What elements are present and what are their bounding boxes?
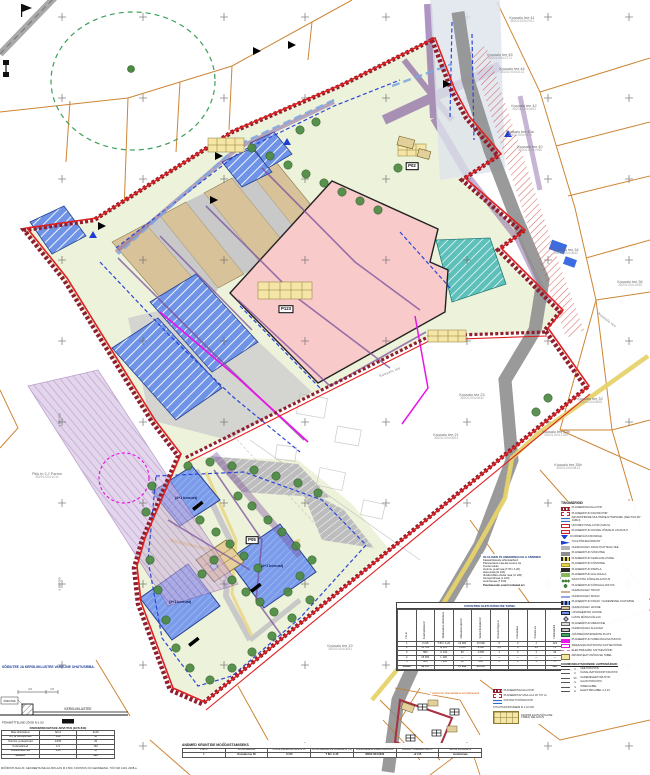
table-row: KOKKU223 (2, 754, 115, 759)
mini-legend-label: PLANEERITAV MAA-ALA 36 737 m² (504, 695, 560, 698)
table-cell (39, 754, 77, 759)
table-cell: 36 737 (416, 665, 435, 670)
legend-item: PLANEERITUD ABIHOONE (561, 622, 649, 626)
legend-item: PLANEERITUD HOONE VÕIMALIK ASUKOHT (561, 530, 649, 534)
rights-table-header-cell: Pos nr (398, 610, 417, 642)
sample-table-row: KRUNDI EHITUSÕIGUSE TABELI SELGITUS (493, 711, 560, 724)
utility-label: ELEKTRIKAABEL 0,4 kV (580, 690, 649, 693)
legend-swatch (561, 595, 570, 599)
utility-label: KANALISATSIOONITORUSTIK (580, 672, 649, 675)
safety-note: SÕIDUTEE JA KERGLIIKLUSTEE VAHELINE OHUT… (2, 666, 114, 670)
parking-table: Maa sihtotstarveNormKohti Äri- ja büroop… (1, 730, 115, 759)
mini-legend-swatch (493, 700, 502, 704)
legend-swatch (561, 579, 570, 583)
legend-swatch (561, 557, 570, 561)
legend-label: KRUNDI EHITUSÕIGUSE TABEL (572, 655, 649, 658)
legend-label: PLANEERITUD KÕRGHALJASTUS (572, 585, 649, 588)
legend-item: TULETÕRJEHÜDRANT (561, 541, 649, 545)
legend-label: OLEMASOLEV ALAJAAM (572, 628, 649, 631)
legend-label: PLANEERITUD KRAAV / SADEMEVEE JUHTIMINE (572, 601, 649, 604)
legend-swatch (561, 512, 570, 516)
mini-legend-item: KONTAKTVÖÖNDI PIIR (493, 700, 560, 704)
rights-table-header-cell: Krundi pindala m² (416, 610, 435, 642)
utility-line-swatch (561, 687, 570, 688)
utility-line-swatch (561, 678, 570, 679)
table-cell: +2 115 (396, 753, 439, 758)
legend-items: PLANEERINGUALA PIIR PLANEERITUD KRUNDI P… (561, 507, 649, 660)
legend-label: PLANEERITUD PARKLA (572, 569, 649, 572)
legend-label: SIDEKANALISATSIOONI KAITSEVÖÖND (572, 645, 649, 648)
legend-label: PLANEERINGUALA PIIR (572, 507, 649, 510)
table-cell (490, 665, 509, 670)
mini-legend-caption: SITUATSIOONISKEEM M 1:10 000 (493, 706, 560, 709)
legend-item: SÄILITATAV KÕRGHALJASTUS (561, 579, 649, 583)
table-cell: KOKKU (2, 754, 40, 759)
legend-label: ELEKTRIKAABLI KAITSEVÖÖND (572, 650, 649, 653)
mini-legend-label: PLANEERINGUALA PIIR (504, 690, 560, 693)
mini-legend-items: PLANEERINGUALA PIIR PLANEERITAV MAA-ALA … (493, 689, 560, 704)
legend-utilities-title: KOMMUNIKATSIOONIDE LEPPEMÄRGID: (561, 662, 649, 666)
legend-swatch (561, 628, 570, 632)
legend-label: PLANEERITUD SIDEKANALISATSIOON (572, 639, 649, 642)
legend-utility-item: SK SADEMEVEETORUSTIK (561, 677, 649, 680)
table-cell: 223 (77, 754, 115, 759)
legend-label: PLANEERITUD HALJASALA (572, 574, 649, 577)
legend-item: LIKVIDEERITAV HOONE (561, 611, 649, 615)
legend-title: TINGMÄRGID (561, 501, 649, 505)
legend-item: PLANEERITUD KÕNNITEE (561, 563, 649, 567)
legend-swatch (561, 573, 570, 577)
rights-table-header-cell: Korruselisus (509, 610, 528, 642)
legend-item: KRUNDIPIIRIDE MUUTMISE ETTEPANEK (KEHTIV… (561, 517, 649, 523)
table-cell: tootmismaa (439, 753, 482, 758)
legend-item: LASTE MÄNGUVÄLJAK (561, 617, 649, 621)
legend-item: OLEMASOLEV ALAJAAM (561, 628, 649, 632)
legend-swatch (561, 524, 570, 528)
legend-item: SIDEKANALISATSIOONI KAITSEVÖÖND (561, 644, 649, 648)
mini-legend-swatch (493, 694, 502, 698)
legend-label: PLANEERITUD KÕNNITEE (572, 563, 649, 566)
legend-item: OLEMASOLEV HOONE (561, 606, 649, 610)
legend-item: PLANEERITUD KERGLIIKLUSTEE (561, 557, 649, 561)
legend-swatch (561, 622, 570, 626)
legend-swatch (561, 518, 570, 522)
legend-swatch (561, 546, 570, 550)
legend-swatch (561, 584, 570, 588)
legend-label: HOONESTUSALA PIIR (SIDUV) (572, 525, 649, 528)
survey-base-note: MÕÕDISTUSALUS: GEODEETILINE ALUSPLAAN M … (1, 767, 261, 770)
legend-label: PLANEERITUD KRUNDI PIIR (572, 513, 649, 516)
legend-label: PLANEERITUD HOONE VÕIMALIK ASUKOHT (572, 530, 649, 533)
table-cell: T 80 / Ä 20 (311, 753, 354, 758)
legend-utility-item: K KANALISATSIOONITORUSTIK (561, 672, 649, 675)
legend-utility-items: V VEETORUSTIK K KANALISATSIOONITORUSTIK … (561, 668, 649, 693)
legend-item: JUURDEPÄÄS KRUNDILE (561, 535, 649, 539)
mini-legend: PLANEERINGUALA PIIR PLANEERITAV MAA-ALA … (493, 689, 560, 724)
utility-code: V (572, 668, 579, 671)
legend-swatch (561, 590, 570, 594)
legend-label: OLEMASOLEV KRAAV (572, 596, 649, 599)
table-cell (435, 665, 454, 670)
legend-item: ELEKTRIKAABLI KAITSEVÖÖND (561, 650, 649, 653)
legend-item: PLANEERITUD PARKLA (561, 568, 649, 572)
sample-rights-table-icon (493, 711, 519, 724)
legend-item: OLEMASOLEV KRAAV (561, 595, 649, 599)
legend-swatch (561, 568, 570, 572)
legend: TINGMÄRGID PLANEERINGUALA PIIR PLANEERIT… (561, 501, 649, 694)
legend-label: PLANEERITUD ABIHOONE (572, 623, 649, 626)
legend-item: PLANEERITUD HALJASALA (561, 573, 649, 577)
legend-label: PLANEERITUD KERGLIIKLUSTEE (572, 558, 649, 561)
legend-label: JUURDEPÄÄS KRUNDILE (570, 536, 649, 539)
section-dim1: 2.0 (28, 687, 32, 691)
legend-swatch (561, 563, 570, 567)
legend-swatch (561, 606, 570, 610)
utility-line-swatch (561, 669, 570, 670)
legend-item: OLEMASOLEV TRUUP (561, 590, 649, 594)
mini-legend-item: PLANEERITAV MAA-ALA 36 737 m² (493, 694, 560, 698)
utility-code: G (572, 681, 579, 684)
legend-label: PLANEERITUD SÕIDUTEE (572, 552, 649, 555)
mini-legend-swatch (493, 689, 502, 693)
rights-table-header-cell: Maakasutuse sihtotstarve (435, 610, 454, 642)
legend-item: PLANEERITUD KÕRGHALJASTUS (561, 584, 649, 588)
table-cell: 20 255 (472, 665, 491, 670)
section-left-label: SÕIDUTEE (3, 700, 16, 703)
legend-item: KRUNDI EHITUSÕIGUSE TABEL (561, 654, 649, 660)
sample-table-caption: KRUNDI EHITUSÕIGUSE TABELI SELGITUS (521, 715, 560, 721)
table-row: 1Kuusalu tee 309 115T 80 / Ä 2035201:004… (183, 753, 482, 758)
legend-swatch (561, 633, 570, 637)
legend-swatch (561, 535, 568, 539)
utility-code: K (572, 672, 579, 675)
section-dim2: 1.5 (50, 687, 54, 691)
rights-table-header-cell: Ehitusalune pind m² (453, 610, 472, 642)
building-rights-table-block: KRUNTIDE EHITUSÕIGUSE TABEL Pos nrKrundi… (396, 602, 584, 671)
utility-line-swatch (561, 682, 570, 683)
legend-label: KRUNDIPIIRIDE MUUTMISE ETTEPANEK (KEHTIV… (572, 517, 649, 523)
rights-table-header-cell: Hoonete arv (527, 610, 546, 642)
rights-table-note: * parkimine lahendatakse krundisiseselt (430, 691, 479, 695)
plot-formation-table-block: ANDMED KRUNTIDE MOODUSTAMISEKS Pos nrKru… (182, 743, 482, 758)
legend-label: LIKVIDEERITAV HOONE (572, 612, 649, 615)
legend-swatch (561, 541, 570, 545)
legend-label: OLEMASOLEV ASFALTKATTEGA TEE (572, 547, 649, 550)
legend-label: JÄÄTMEKONTEINERITE PLATS (572, 634, 649, 637)
legend-utility-item: G GAASITORUSTIK (561, 681, 649, 684)
parking-calculation-block: PARKIMISKOHTADE ARVUTUS (EVS 843) Maa si… (1, 726, 115, 759)
formation-table: Pos nrKrundi aadressKrundi planeeritud s… (182, 748, 482, 758)
legend-item: HOONESTUSALA PIIR (SIDUV) (561, 524, 649, 528)
legend-item: PLANEERITUD SIDEKANALISATSIOON (561, 639, 649, 643)
section-path-label: KERGLIIKLUSTEE (64, 707, 91, 711)
legend-item: PLANEERINGUALA PIIR (561, 507, 649, 511)
legend-swatch (561, 530, 570, 534)
legend-swatch (561, 639, 570, 643)
legend-swatch (561, 654, 570, 660)
table-cell: 9 115 (268, 753, 311, 758)
legend-item: OLEMASOLEV ASFALTKATTEGA TEE (561, 546, 649, 550)
legend-label: OLEMASOLEV TRUUP (572, 590, 649, 593)
legend-swatch (561, 552, 570, 556)
legend-swatch (561, 650, 570, 651)
table-cell: 17 290 (453, 665, 472, 670)
rights-table-header-cell: Suletud brutopind m² (472, 610, 491, 642)
table-cell: 35201:004:0840 (353, 753, 396, 758)
legend-item: PLANEERITUD SÕIDUTEE (561, 552, 649, 556)
table-cell: Kokku (398, 665, 417, 670)
utility-code: S (572, 686, 579, 689)
legend-label: SÄILITATAV KÕRGHALJASTUS (572, 579, 649, 582)
utility-code: SK (572, 677, 579, 680)
mini-legend-label: KONTAKTVÖÖNDI PIIR (504, 700, 560, 703)
legend-swatch (561, 644, 570, 648)
table-row: Kokku36 73717 29020 255226 (398, 665, 583, 670)
mini-legend-item: PLANEERINGUALA PIIR (493, 689, 560, 693)
table-cell (509, 665, 528, 670)
utility-line-swatch (561, 673, 570, 674)
legend-label: TULETÕRJEHÜDRANT (572, 541, 649, 544)
table-cell (527, 665, 546, 670)
section-caption: PÕHIMÕTTELINE LÕIGE M 1:50 (2, 720, 44, 725)
utility-code: E (572, 690, 579, 693)
legend-utility-item: E ELEKTRIKAABEL 0,4 kV (561, 690, 649, 693)
legend-label: LASTE MÄNGUVÄLJAK (572, 617, 649, 620)
legend-label: OLEMASOLEV HOONE (572, 607, 649, 610)
legend-item: PLANEERITUD KRAAV / SADEMEVEE JUHTIMINE (561, 601, 649, 605)
plan-sheet: 2.0 1.5 SÕIDUTEE KERGLIIKLUSTEE PÕHIMÕTT… (0, 0, 650, 775)
legend-swatch (561, 507, 570, 511)
legend-swatch (563, 616, 569, 622)
utility-line-swatch (561, 691, 570, 692)
legend-swatch (561, 601, 570, 605)
rights-table: Pos nrKrundi pindala m²Maakasutuse sihto… (397, 609, 583, 670)
legend-item: JÄÄTMEKONTEINERITE PLATS (561, 633, 649, 637)
formation-table-title: ANDMED KRUNTIDE MOODUSTAMISEKS (182, 743, 482, 747)
rights-table-header-cell: Hoonete kõrgus m (490, 610, 509, 642)
table-cell: 1 (183, 753, 226, 758)
utility-label: GAASITORUSTIK (580, 681, 649, 684)
single-tree-icon (128, 66, 135, 73)
table-cell: Kuusalu tee 30 (225, 753, 268, 758)
